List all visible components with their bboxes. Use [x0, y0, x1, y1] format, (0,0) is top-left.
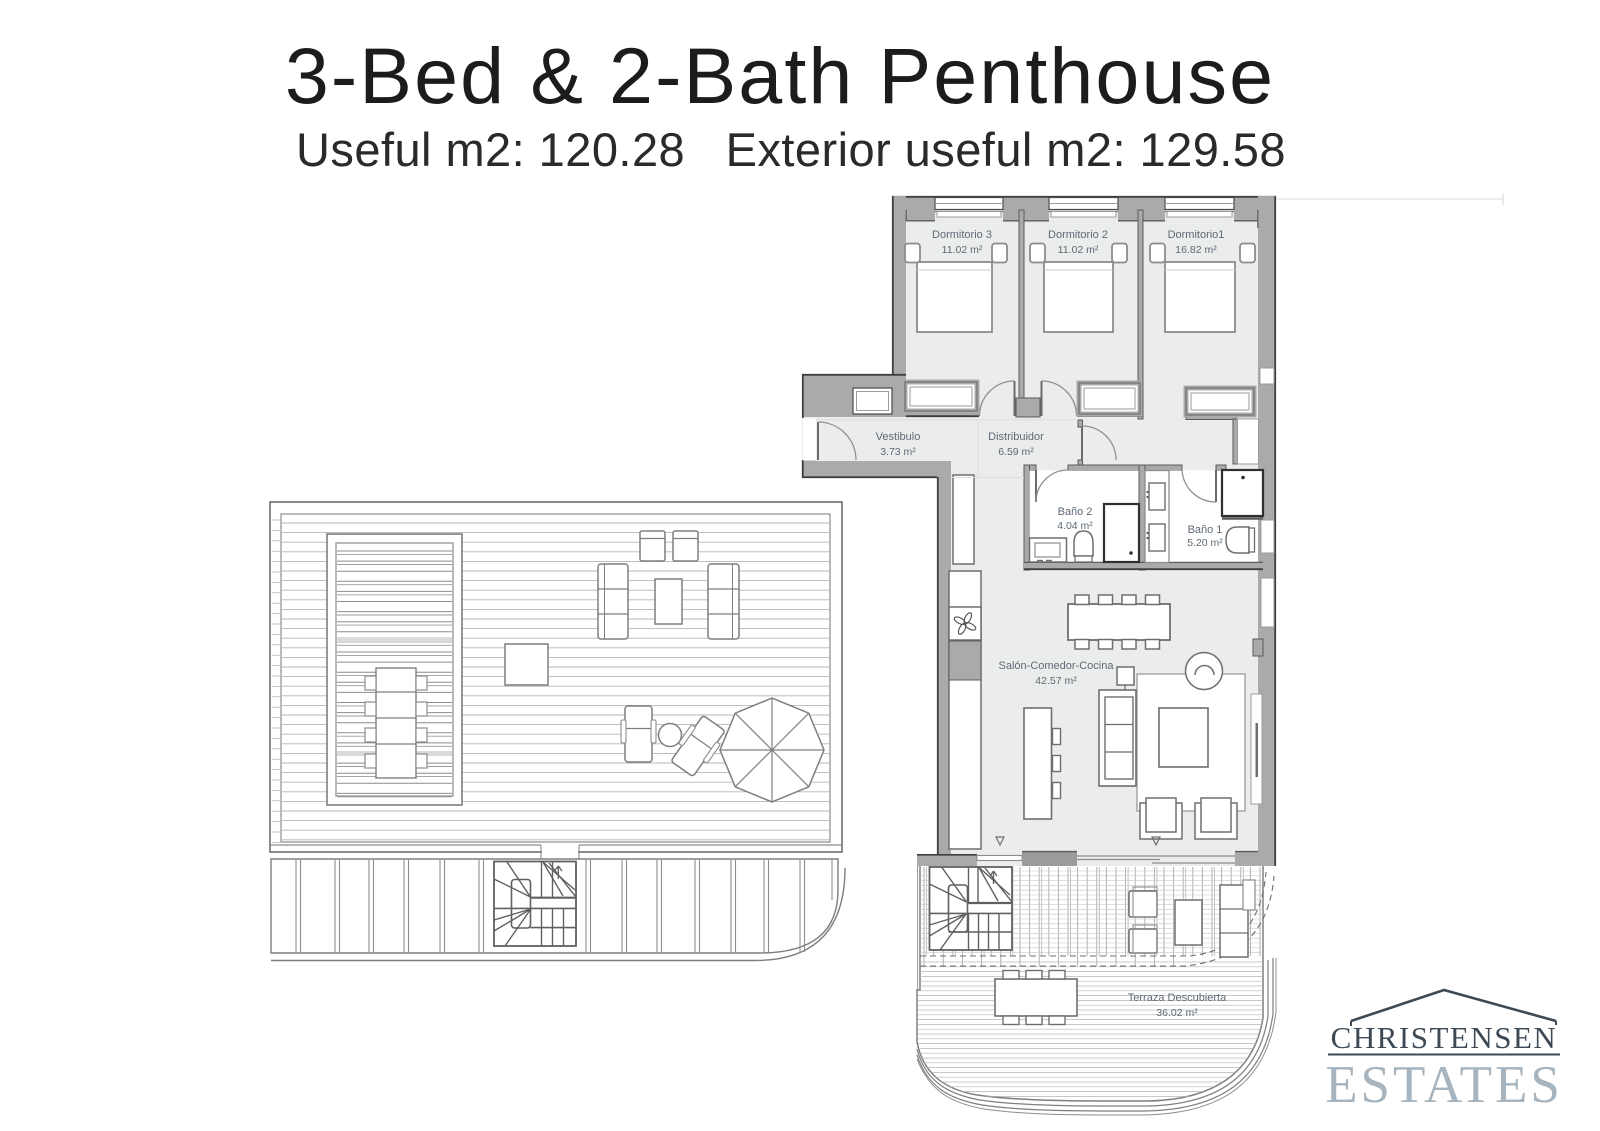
svg-text:Terraza Descubierta: Terraza Descubierta — [1128, 992, 1227, 1004]
svg-text:Baño 1: Baño 1 — [1188, 524, 1223, 536]
svg-text:ESTATES: ESTATES — [1325, 1056, 1563, 1114]
svg-text:11.02 m²: 11.02 m² — [942, 244, 983, 256]
svg-text:Salón-Comedor-Cocina: Salón-Comedor-Cocina — [999, 660, 1115, 672]
svg-text:6.59 m²: 6.59 m² — [998, 446, 1034, 458]
svg-text:42.57 m²: 42.57 m² — [1035, 675, 1077, 687]
svg-text:3.73 m²: 3.73 m² — [880, 446, 916, 458]
svg-text:11.02 m²: 11.02 m² — [1058, 244, 1099, 256]
svg-text:Distribuidor: Distribuidor — [988, 431, 1044, 443]
svg-text:3-Bed & 2-Bath Penthouse: 3-Bed & 2-Bath Penthouse — [285, 31, 1275, 120]
svg-text:CHRISTENSEN: CHRISTENSEN — [1331, 1020, 1558, 1055]
svg-text:36.02 m²: 36.02 m² — [1156, 1007, 1198, 1019]
svg-text:Baño 2: Baño 2 — [1058, 506, 1093, 518]
svg-text:Dormitorio1: Dormitorio1 — [1168, 229, 1225, 241]
svg-text:Dormitorio 2: Dormitorio 2 — [1048, 229, 1108, 241]
svg-text:16.82 m²: 16.82 m² — [1175, 244, 1217, 256]
svg-text:Vestibulo: Vestibulo — [876, 431, 921, 443]
svg-text:4.04 m²: 4.04 m² — [1057, 520, 1093, 532]
svg-text:5.20 m²: 5.20 m² — [1187, 537, 1223, 549]
svg-text:Useful m2: 120.28 Exterior u: Useful m2: 120.28 Exterior useful m2: 12… — [296, 123, 1286, 176]
svg-text:Dormitorio 3: Dormitorio 3 — [932, 229, 992, 241]
